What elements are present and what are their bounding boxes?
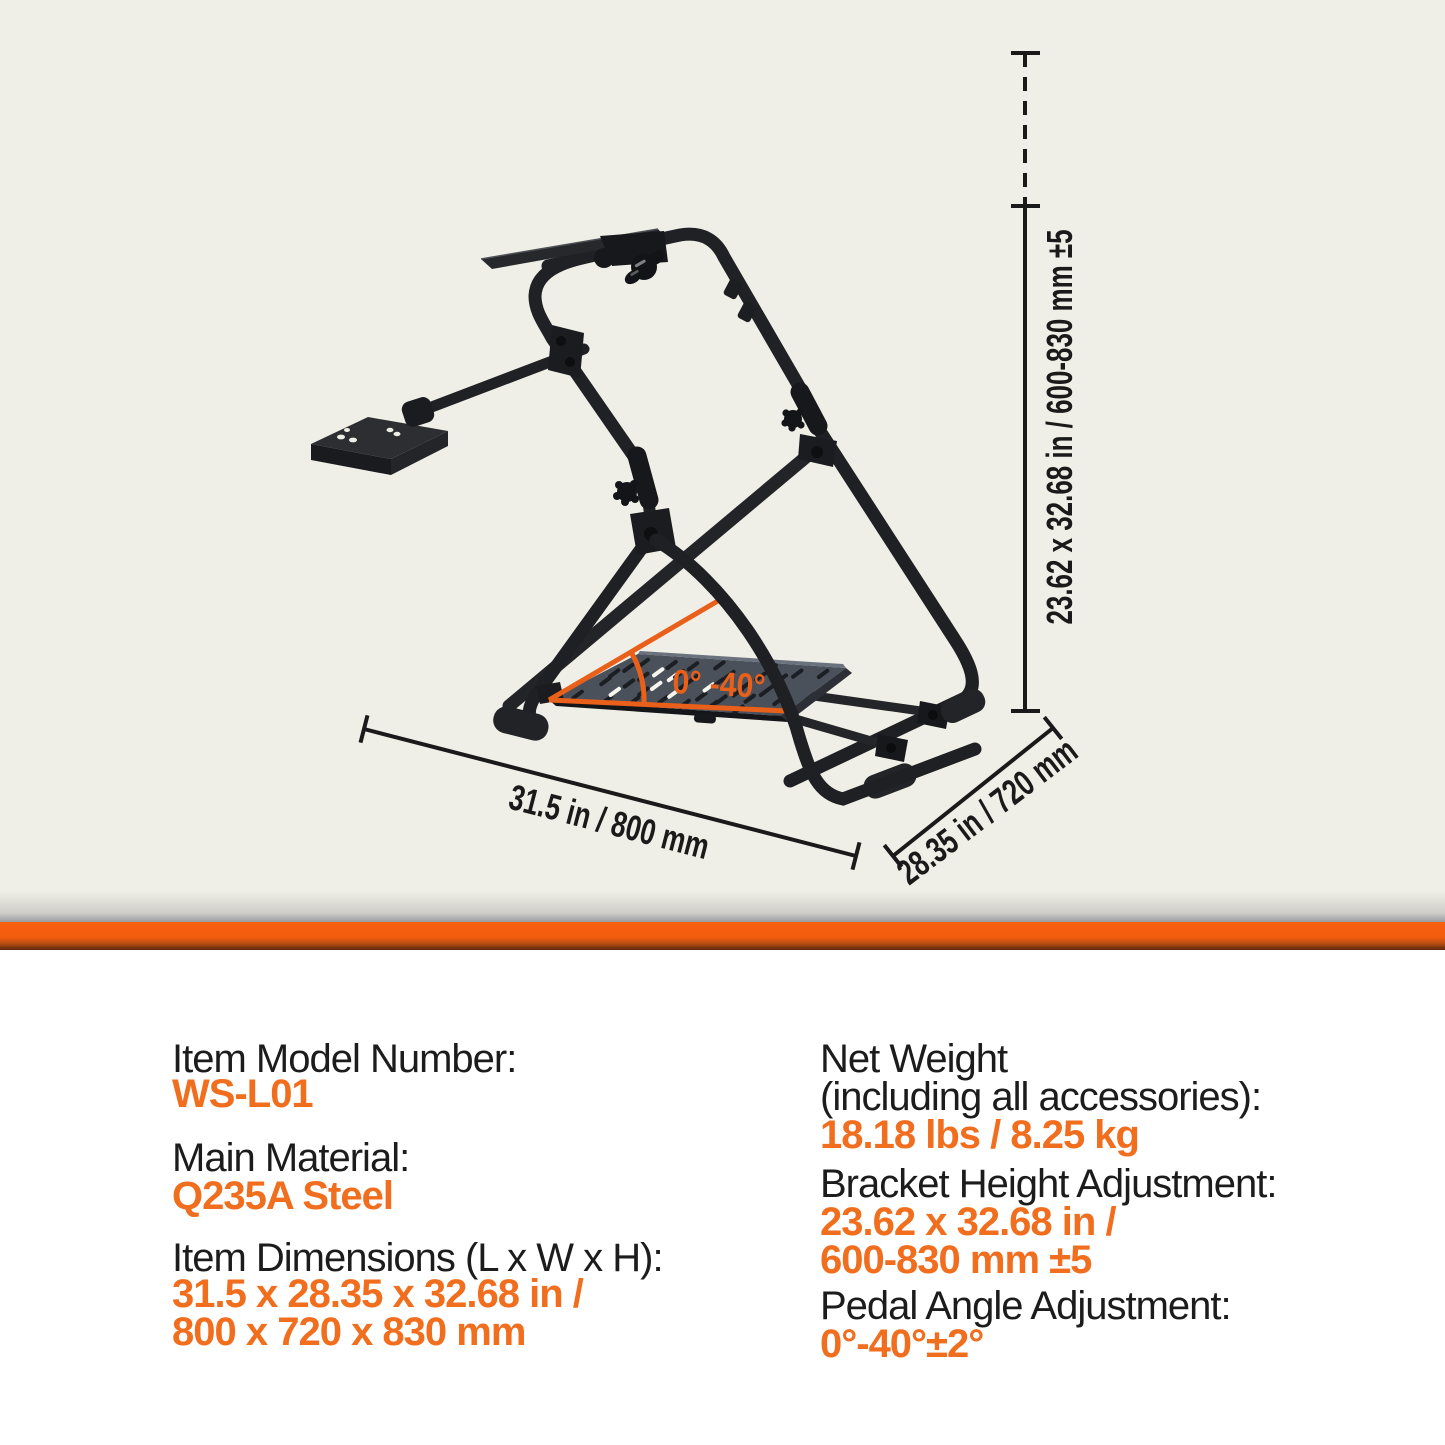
svg-text:0° -40°: 0° -40° — [672, 662, 767, 705]
svg-text:28.35 in / 720 mm: 28.35 in / 720 mm — [890, 730, 1085, 892]
svg-text:31.5 in / 800 mm: 31.5 in / 800 mm — [505, 776, 714, 867]
svg-text:23.62 x 32.68 in / 600-830 mm: 23.62 x 32.68 in / 600-830 mm ±5 — [1040, 229, 1080, 624]
